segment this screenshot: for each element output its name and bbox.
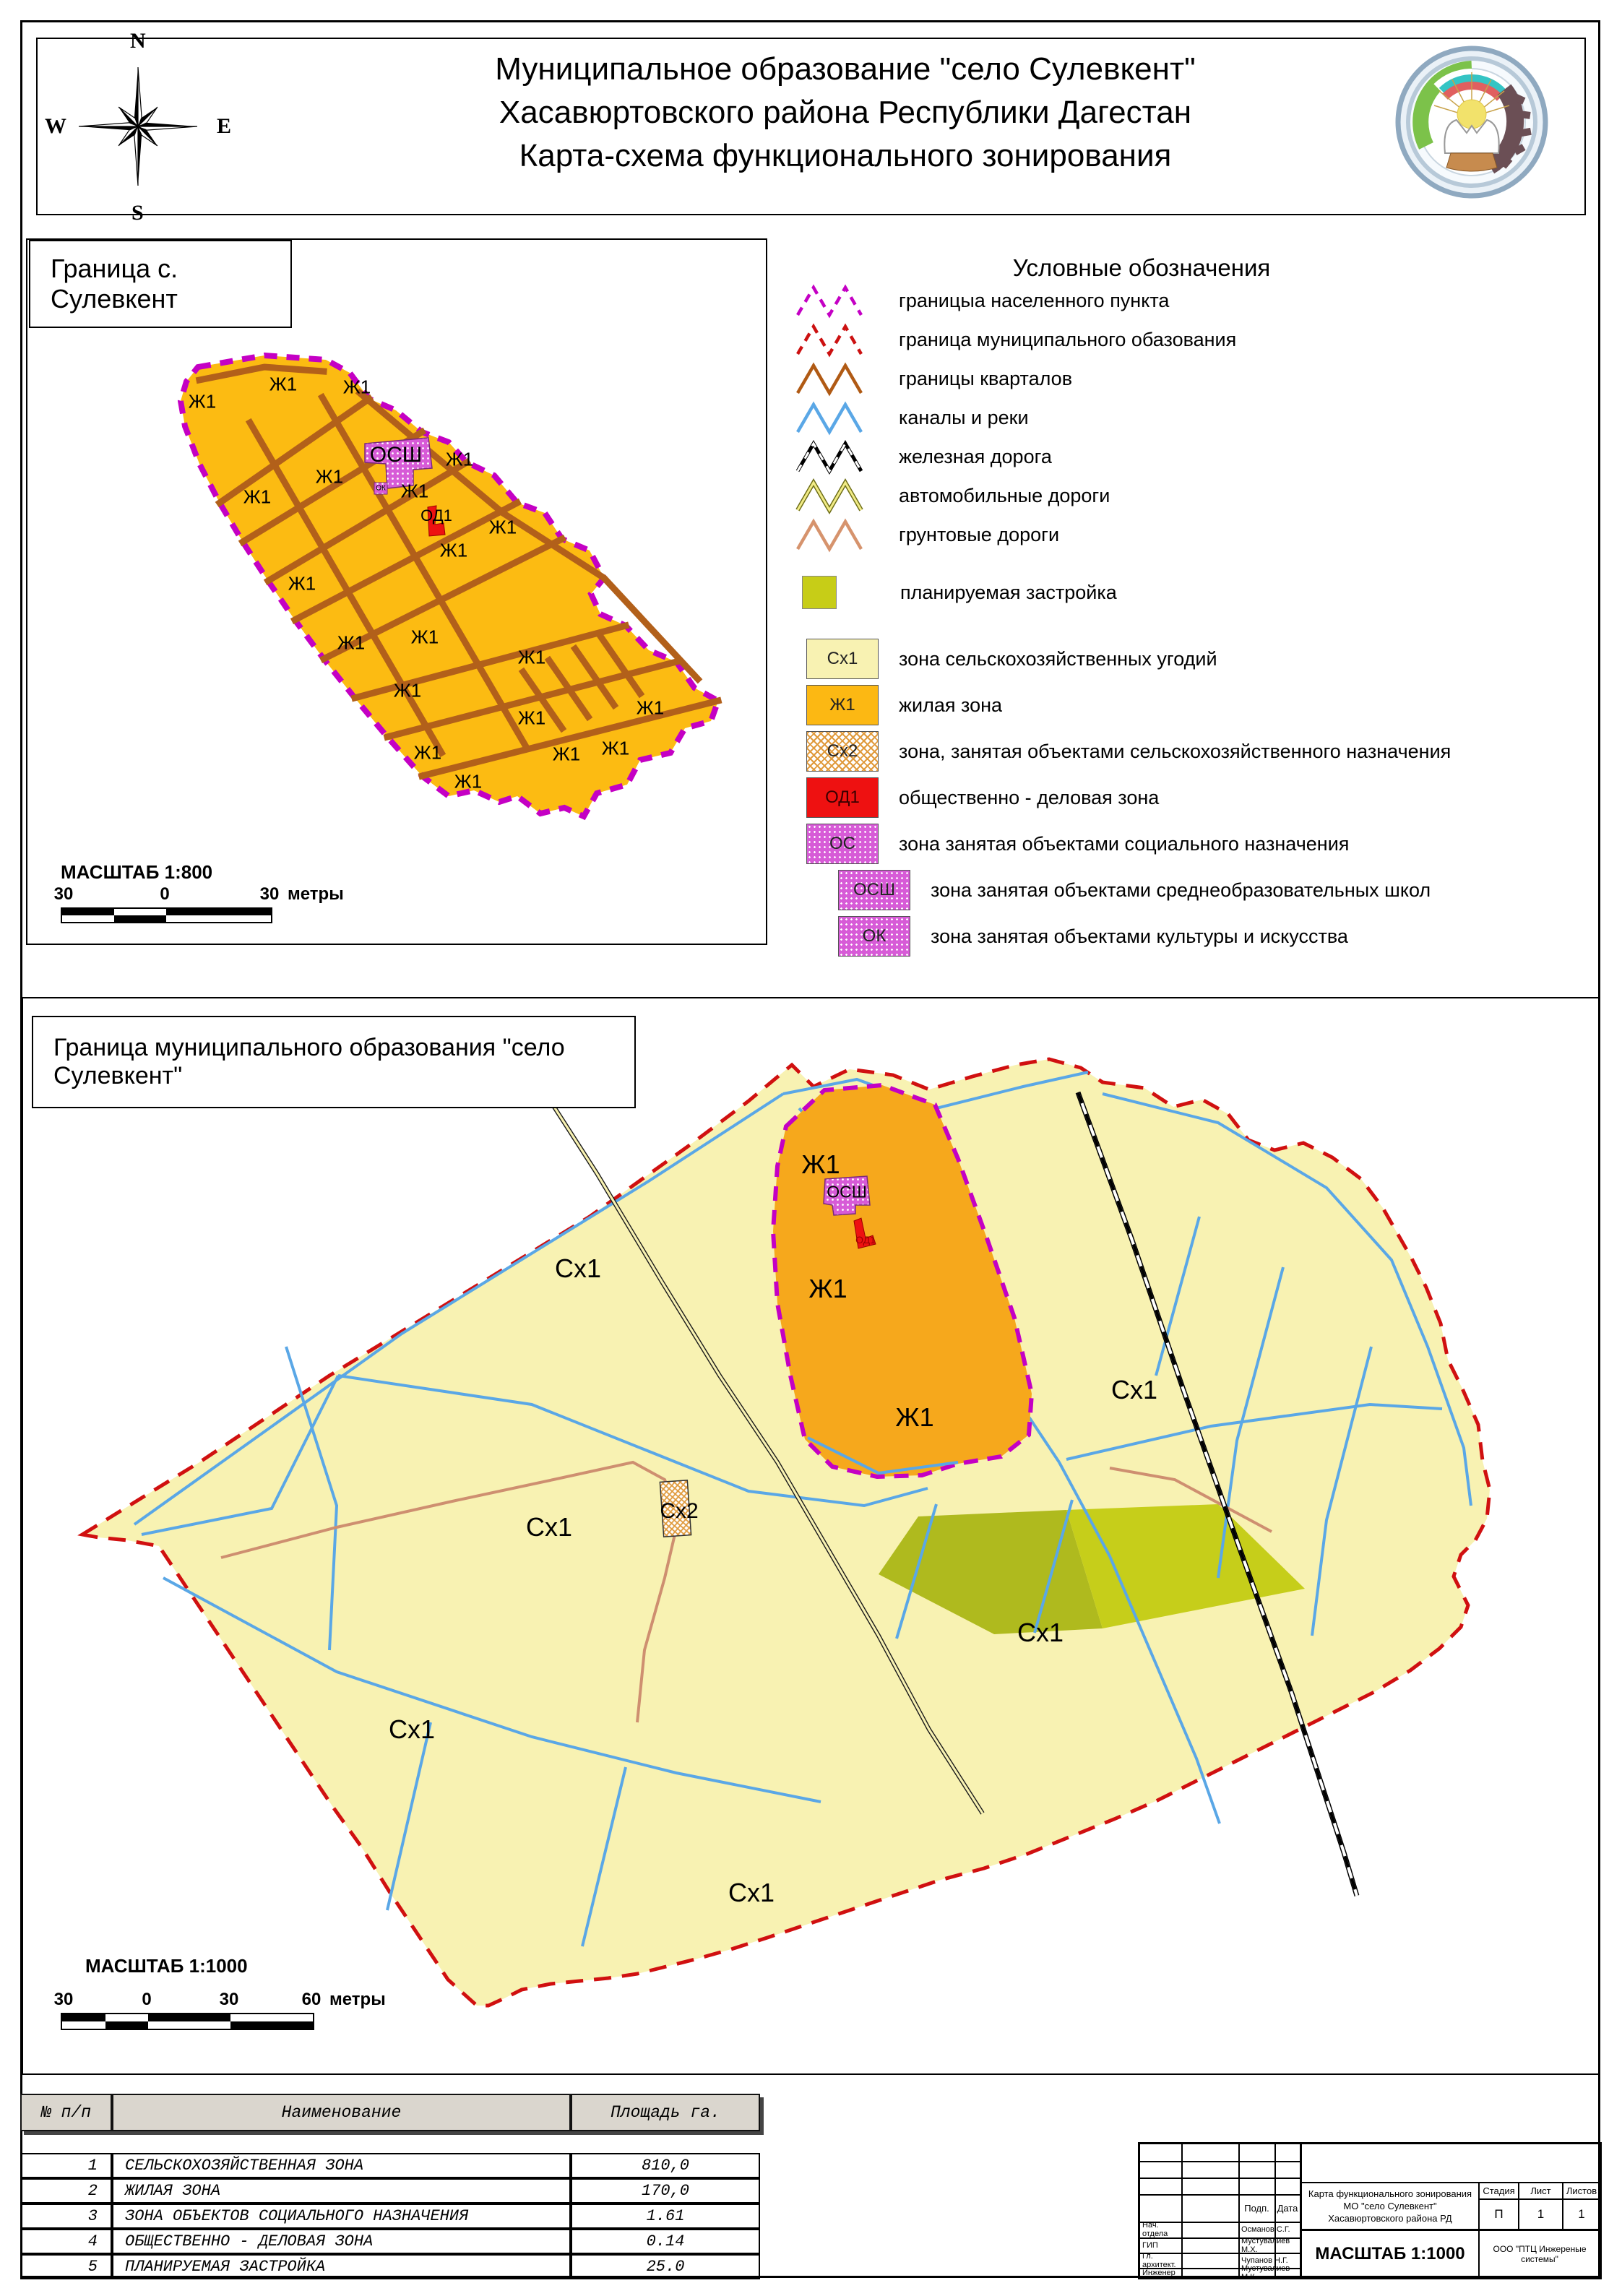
zone-label-ОК: ОК — [376, 485, 386, 493]
stamp-sign-header: Подп. — [1239, 2195, 1274, 2222]
zone-label-Ж1: Ж1 — [401, 480, 428, 503]
lower-scale-label: МАСШТАБ 1:1000 — [85, 1955, 248, 1977]
legend-zone-ОСШ: ОСШзона занятая объектами среднеобразова… — [838, 870, 1431, 910]
legend-line-label: грунтовые дороги — [899, 524, 1059, 546]
page-title: Муниципальное образование "село Сулевкен… — [246, 48, 1445, 178]
legend-zone-label: зона занятая объектами социального назна… — [899, 833, 1349, 855]
scale-unit: метры — [329, 1990, 386, 2010]
organization-logo — [1394, 45, 1550, 200]
legend-line-auto-roads: автомобильные дороги — [795, 475, 1110, 516]
scale-number: 30 — [54, 884, 74, 905]
table-cell: 5 — [20, 2254, 112, 2279]
stamp-project-title: Карта функционального зонирования МО "се… — [1302, 2183, 1478, 2228]
table-header-num: № п/п — [20, 2094, 112, 2131]
compass-w: W — [45, 114, 66, 139]
legend-zone-ОК: ОКзона занятая объектами культуры и иску… — [838, 916, 1348, 957]
stamp-role: Гл. архитект. — [1142, 2253, 1181, 2268]
legend-line-label: каналы и реки — [899, 407, 1029, 429]
table-header-name: Наименование — [112, 2094, 571, 2131]
zone-label-Ж1: Ж1 — [446, 449, 473, 471]
quarter-borders-icon — [795, 358, 867, 399]
stamp-company: ООО "ПТЦ Инжереные системы" — [1480, 2231, 1600, 2277]
legend-zone-Сх2: Сх2зона, занятая объектами сельскохозяйс… — [806, 731, 1451, 772]
legend-planned-label: планируемая застройка — [900, 582, 1117, 604]
legend-zone-label: зона, занятая объектами сельскохозяйстве… — [899, 741, 1451, 763]
zone-label-Ж1: Ж1 — [411, 626, 439, 649]
page-title-line2: Хасавюртовского района Республики Дагест… — [246, 91, 1445, 134]
compass-s: S — [131, 201, 144, 225]
auto-roads-icon — [795, 475, 867, 516]
planned-swatch — [802, 576, 837, 609]
scale-number: 30 — [220, 1990, 239, 2010]
legend-line-dirt-roads: грунтовые дороги — [795, 514, 1059, 555]
zone-label-Ж1: Ж1 — [895, 1402, 933, 1433]
page-title-line3: Карта-схема функционального зонирования — [246, 134, 1445, 178]
zone-swatch-Ж1: Ж1 — [806, 685, 879, 725]
zone-label-Сх1: Сх1 — [526, 1512, 572, 1542]
zone-label-ОСШ: ОСШ — [827, 1183, 867, 1202]
upper-scale-label: МАСШТАБ 1:800 — [61, 861, 212, 884]
zone-label-Ж1: Ж1 — [394, 680, 421, 702]
zone-swatch-ОД1: ОД1 — [806, 777, 879, 818]
legend-zone-Ж1: Ж1жилая зона — [806, 685, 1002, 725]
stamp-name: Мустувалиев М.К. — [1241, 2268, 1299, 2277]
stamp-stage-header: Стадия — [1480, 2183, 1518, 2198]
legend-line-label: автомобильные дороги — [899, 485, 1110, 507]
municipal-border-icon — [795, 319, 867, 360]
zone-label-Сх1: Сх1 — [1111, 1375, 1157, 1405]
zone-label-Ж1: Ж1 — [269, 374, 297, 396]
legend-line-settlement-border: границыа населенного пункта — [795, 280, 1169, 321]
zone-label-Ж1: Ж1 — [189, 391, 216, 413]
table-cell: 25.0 — [571, 2254, 760, 2279]
table-cell: ЖИЛАЯ ЗОНА — [112, 2178, 571, 2204]
table-cell: ЗОНА ОБЪЕКТОВ СОЦИАЛЬНОГО НАЗНАЧЕНИЯ — [112, 2204, 571, 2229]
legend-line-label: граница муниципального обазования — [899, 329, 1236, 351]
stamp-name: Османов С.Г. — [1241, 2222, 1299, 2237]
stamp-role: Инженер — [1142, 2268, 1181, 2277]
zone-swatch-Сх1: Сх1 — [806, 639, 879, 679]
zone-label-Ж1: Ж1 — [337, 632, 365, 655]
stamp-date-header: Дата — [1275, 2195, 1300, 2222]
table-cell: 170,0 — [571, 2178, 760, 2204]
stamp-sheet-value: 1 — [1519, 2200, 1562, 2229]
table-cell: 3 — [20, 2204, 112, 2229]
zone-label-ОСШ: ОСШ — [370, 443, 423, 467]
legend-zone-label: жилая зона — [899, 694, 1002, 717]
stamp-scale: МАСШТАБ 1:1000 — [1302, 2231, 1478, 2277]
table-cell: 4 — [20, 2229, 112, 2254]
zone-swatch-ОС: ОС — [806, 824, 879, 864]
zone-label-Ж1: Ж1 — [518, 647, 545, 669]
scale-number: 0 — [160, 884, 169, 905]
zone-label-Сх1: Сх1 — [1017, 1618, 1064, 1648]
legend-zone-label: зона сельскохозяйственных угодий — [899, 648, 1217, 670]
scale-number: 60 — [302, 1990, 322, 2010]
legend-title: Условные обозначения — [954, 254, 1329, 282]
zone-label-ОД1: ОД1 — [855, 1234, 876, 1246]
table-header-area: Площадь га. — [571, 2094, 760, 2131]
table-cell: 1 — [20, 2153, 112, 2178]
zone-label-Ж1: Ж1 — [440, 540, 467, 562]
legend-line-canals-rivers: каналы и реки — [795, 397, 1029, 438]
map-sheet: N S W E Муниципальное образование "село … — [0, 0, 1622, 2296]
legend-zone-label: общественно - деловая зона — [899, 787, 1159, 809]
stamp-name: Мустувалиев М.Х. — [1241, 2237, 1299, 2253]
zone-swatch-Сх2: Сх2 — [806, 731, 879, 772]
municipality-zone-labels: Ж1ОСШОД1Ж1Ж1Сх1Сх1Сх1Сх2Сх1Сх1Сх1 — [26, 1000, 1599, 2072]
lower-scale-bar — [61, 2013, 314, 2030]
zone-label-Сх1: Сх1 — [389, 1714, 435, 1745]
zone-label-Ж1: Ж1 — [553, 743, 580, 766]
table-cell: 1.61 — [571, 2204, 760, 2229]
canals-rivers-icon — [795, 397, 867, 438]
table-cell: 0.14 — [571, 2229, 760, 2254]
legend-line-label: границы кварталов — [899, 368, 1072, 390]
scale-number: 30 — [54, 1990, 74, 2010]
legend-line-label: железная дорога — [899, 446, 1052, 468]
compass-e: E — [217, 114, 231, 139]
compass-n: N — [130, 29, 146, 53]
legend-line-quarter-borders: границы кварталов — [795, 358, 1072, 399]
stamp-stage-value: П — [1480, 2200, 1518, 2229]
page-title-line1: Муниципальное образование "село Сулевкен… — [246, 48, 1445, 91]
scale-number: 0 — [142, 1990, 151, 2010]
compass-rose-icon — [69, 58, 207, 195]
upper-scale-bar — [61, 907, 272, 923]
table-cell: 810,0 — [571, 2153, 760, 2178]
zone-label-Ж1: Ж1 — [454, 771, 482, 793]
zone-label-Сх1: Сх1 — [555, 1253, 601, 1284]
legend-line-label: границыа населенного пункта — [899, 290, 1169, 312]
zone-label-Сх1: Сх1 — [728, 1878, 775, 1908]
legend-zone-Сх1: Сх1зона сельскохозяйственных угодий — [806, 639, 1217, 679]
table-cell: ОБЩЕСТВЕННО - ДЕЛОВАЯ ЗОНА — [112, 2229, 571, 2254]
zone-label-Ж1: Ж1 — [808, 1274, 847, 1304]
legend-zone-label: зона занятая объектами среднеобразовател… — [931, 879, 1431, 902]
legend-zone-ОД1: ОД1общественно - деловая зона — [806, 777, 1159, 818]
table-cell: ПЛАНИРУЕМАЯ ЗАСТРОЙКА — [112, 2254, 571, 2279]
table-cell: 2 — [20, 2178, 112, 2204]
stamp-sheet-header: Лист — [1519, 2183, 1562, 2198]
railway-icon — [795, 436, 867, 477]
zone-label-Сх2: Сх2 — [660, 1499, 698, 1524]
stamp-role: ГИП — [1142, 2237, 1181, 2253]
zone-label-Ж1: Ж1 — [602, 738, 629, 760]
zone-label-Ж1: Ж1 — [343, 376, 371, 399]
scale-unit: метры — [288, 884, 344, 905]
zone-label-Ж1: Ж1 — [489, 517, 517, 539]
stamp-role: Нач. отдела — [1142, 2222, 1181, 2237]
title-block: Подп. Дата Нач. отделаОсманов С.Г.ГИПМус… — [1138, 2142, 1602, 2279]
zone-label-ОД1: ОД1 — [420, 506, 452, 525]
settlement-border-icon — [795, 280, 867, 321]
legend-line-railway: железная дорога — [795, 436, 1052, 477]
stamp-sheets-header: Листов — [1563, 2183, 1600, 2198]
zone-swatch-ОСШ: ОСШ — [838, 870, 910, 910]
zone-label-Ж1: Ж1 — [243, 486, 271, 509]
zone-label-Ж1: Ж1 — [288, 573, 316, 595]
scale-number: 30 — [260, 884, 280, 905]
zone-label-Ж1: Ж1 — [801, 1149, 840, 1180]
stamp-sheets-value: 1 — [1563, 2200, 1600, 2229]
zone-swatch-ОК: ОК — [838, 916, 910, 957]
zone-label-Ж1: Ж1 — [637, 697, 664, 720]
zone-label-Ж1: Ж1 — [414, 742, 441, 764]
dirt-roads-icon — [795, 514, 867, 555]
legend-line-municipal-border: граница муниципального обазования — [795, 319, 1236, 360]
zone-label-Ж1: Ж1 — [316, 466, 343, 488]
zone-label-Ж1: Ж1 — [518, 707, 545, 730]
legend-zone-ОС: ОСзона занятая объектами социального наз… — [806, 824, 1349, 864]
legend-planned-development: планируемая застройка — [802, 572, 1117, 613]
table-cell: СЕЛЬСКОХОЗЯЙСТВЕННАЯ ЗОНА — [112, 2153, 571, 2178]
legend-zone-label: зона занятая объектами культуры и искусс… — [931, 925, 1348, 948]
village-zone-labels: Ж1Ж1Ж1Ж1Ж1ОСШОКЖ1ОД1Ж1Ж1Ж1Ж1Ж1Ж1Ж1Ж1Ж1Ж1… — [26, 238, 767, 944]
